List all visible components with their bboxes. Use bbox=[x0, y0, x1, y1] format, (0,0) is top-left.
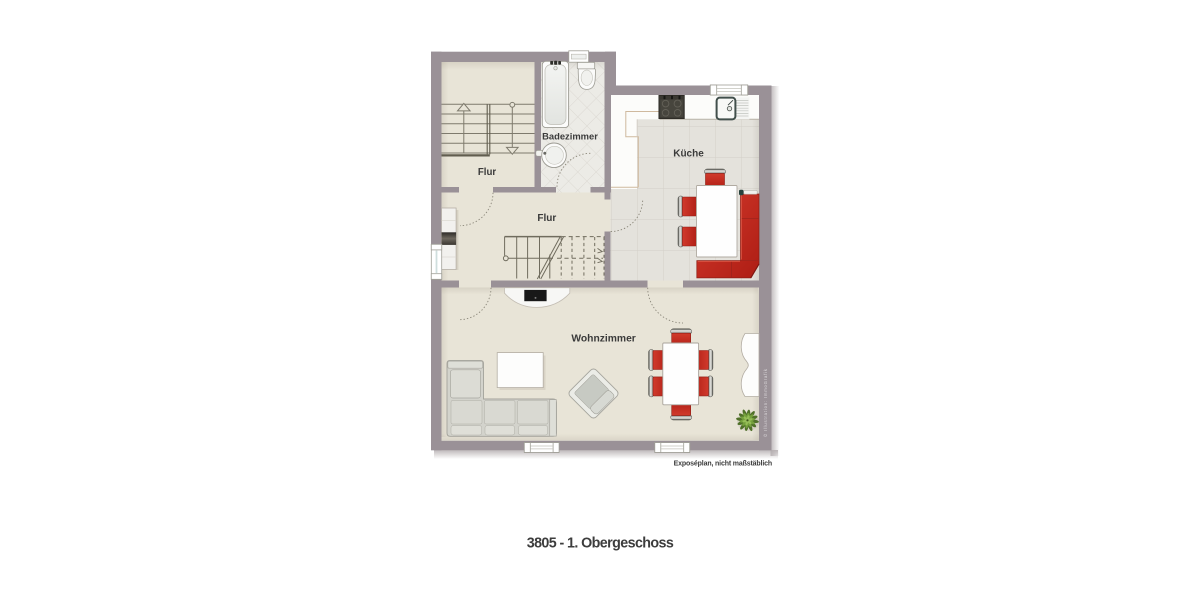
svg-text:Badezimmer: Badezimmer bbox=[542, 131, 598, 142]
svg-text:3805 - 1. Obergeschoss: 3805 - 1. Obergeschoss bbox=[527, 536, 674, 552]
svg-text:Flur: Flur bbox=[478, 167, 497, 178]
svg-text:© Illustration: ImmoGrafik: © Illustration: ImmoGrafik bbox=[763, 368, 768, 437]
svg-text:Exposéplan, nicht maßstäblich: Exposéplan, nicht maßstäblich bbox=[674, 460, 772, 467]
svg-text:Küche: Küche bbox=[673, 149, 704, 160]
svg-text:Flur: Flur bbox=[537, 213, 556, 224]
svg-text:Wohnzimmer: Wohnzimmer bbox=[571, 334, 635, 345]
